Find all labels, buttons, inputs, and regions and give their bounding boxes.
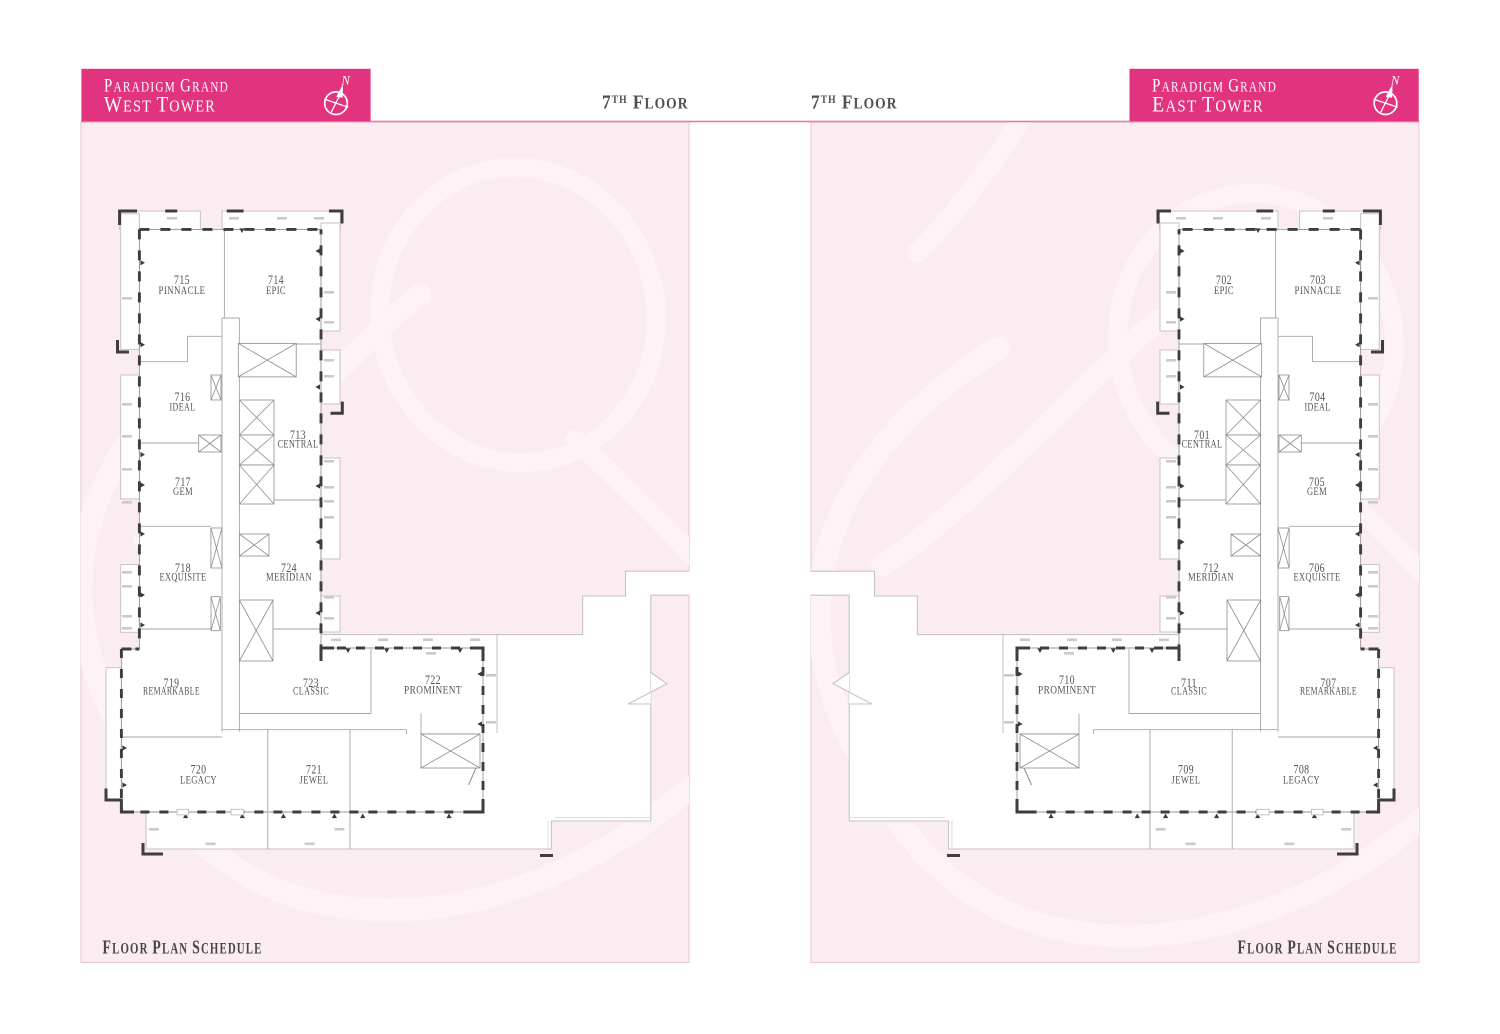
svg-text:JEWEL: JEWEL — [1172, 775, 1201, 787]
svg-text:PROMINENT: PROMINENT — [1038, 685, 1096, 697]
svg-text:JEWEL: JEWEL — [300, 775, 329, 787]
svg-text:GEM: GEM — [1307, 486, 1327, 498]
svg-text:IDEAL: IDEAL — [1305, 402, 1331, 414]
svg-text:LEGACY: LEGACY — [180, 775, 217, 787]
svg-text:MERIDIAN: MERIDIAN — [1188, 572, 1234, 584]
svg-text:FLOOR PLAN SCHEDULE: FLOOR PLAN SCHEDULE — [1238, 937, 1398, 958]
svg-text:EXQUISITE: EXQUISITE — [1294, 572, 1341, 584]
svg-text:N: N — [1390, 74, 1400, 88]
svg-text:PINNACLE: PINNACLE — [1295, 285, 1342, 297]
svg-text:FLOOR PLAN SCHEDULE: FLOOR PLAN SCHEDULE — [103, 937, 263, 958]
svg-text:EPIC: EPIC — [1214, 285, 1234, 297]
svg-text:CENTRAL: CENTRAL — [278, 439, 319, 451]
svg-text:MERIDIAN: MERIDIAN — [266, 572, 312, 584]
svg-text:EXQUISITE: EXQUISITE — [160, 572, 207, 584]
svg-text:CLASSIC: CLASSIC — [1171, 686, 1207, 698]
svg-text:PINNACLE: PINNACLE — [159, 285, 206, 297]
svg-text:EPIC: EPIC — [266, 285, 286, 297]
svg-text:GEM: GEM — [173, 486, 193, 498]
svg-text:CLASSIC: CLASSIC — [293, 686, 329, 698]
svg-text:LEGACY: LEGACY — [1283, 775, 1320, 787]
svg-text:CENTRAL: CENTRAL — [1182, 439, 1223, 451]
svg-text:N: N — [341, 74, 351, 88]
svg-text:REMARKABLE: REMARKABLE — [143, 686, 200, 698]
svg-text:IDEAL: IDEAL — [170, 402, 196, 414]
svg-text:REMARKABLE: REMARKABLE — [1300, 686, 1357, 698]
svg-text:PROMINENT: PROMINENT — [404, 685, 462, 697]
